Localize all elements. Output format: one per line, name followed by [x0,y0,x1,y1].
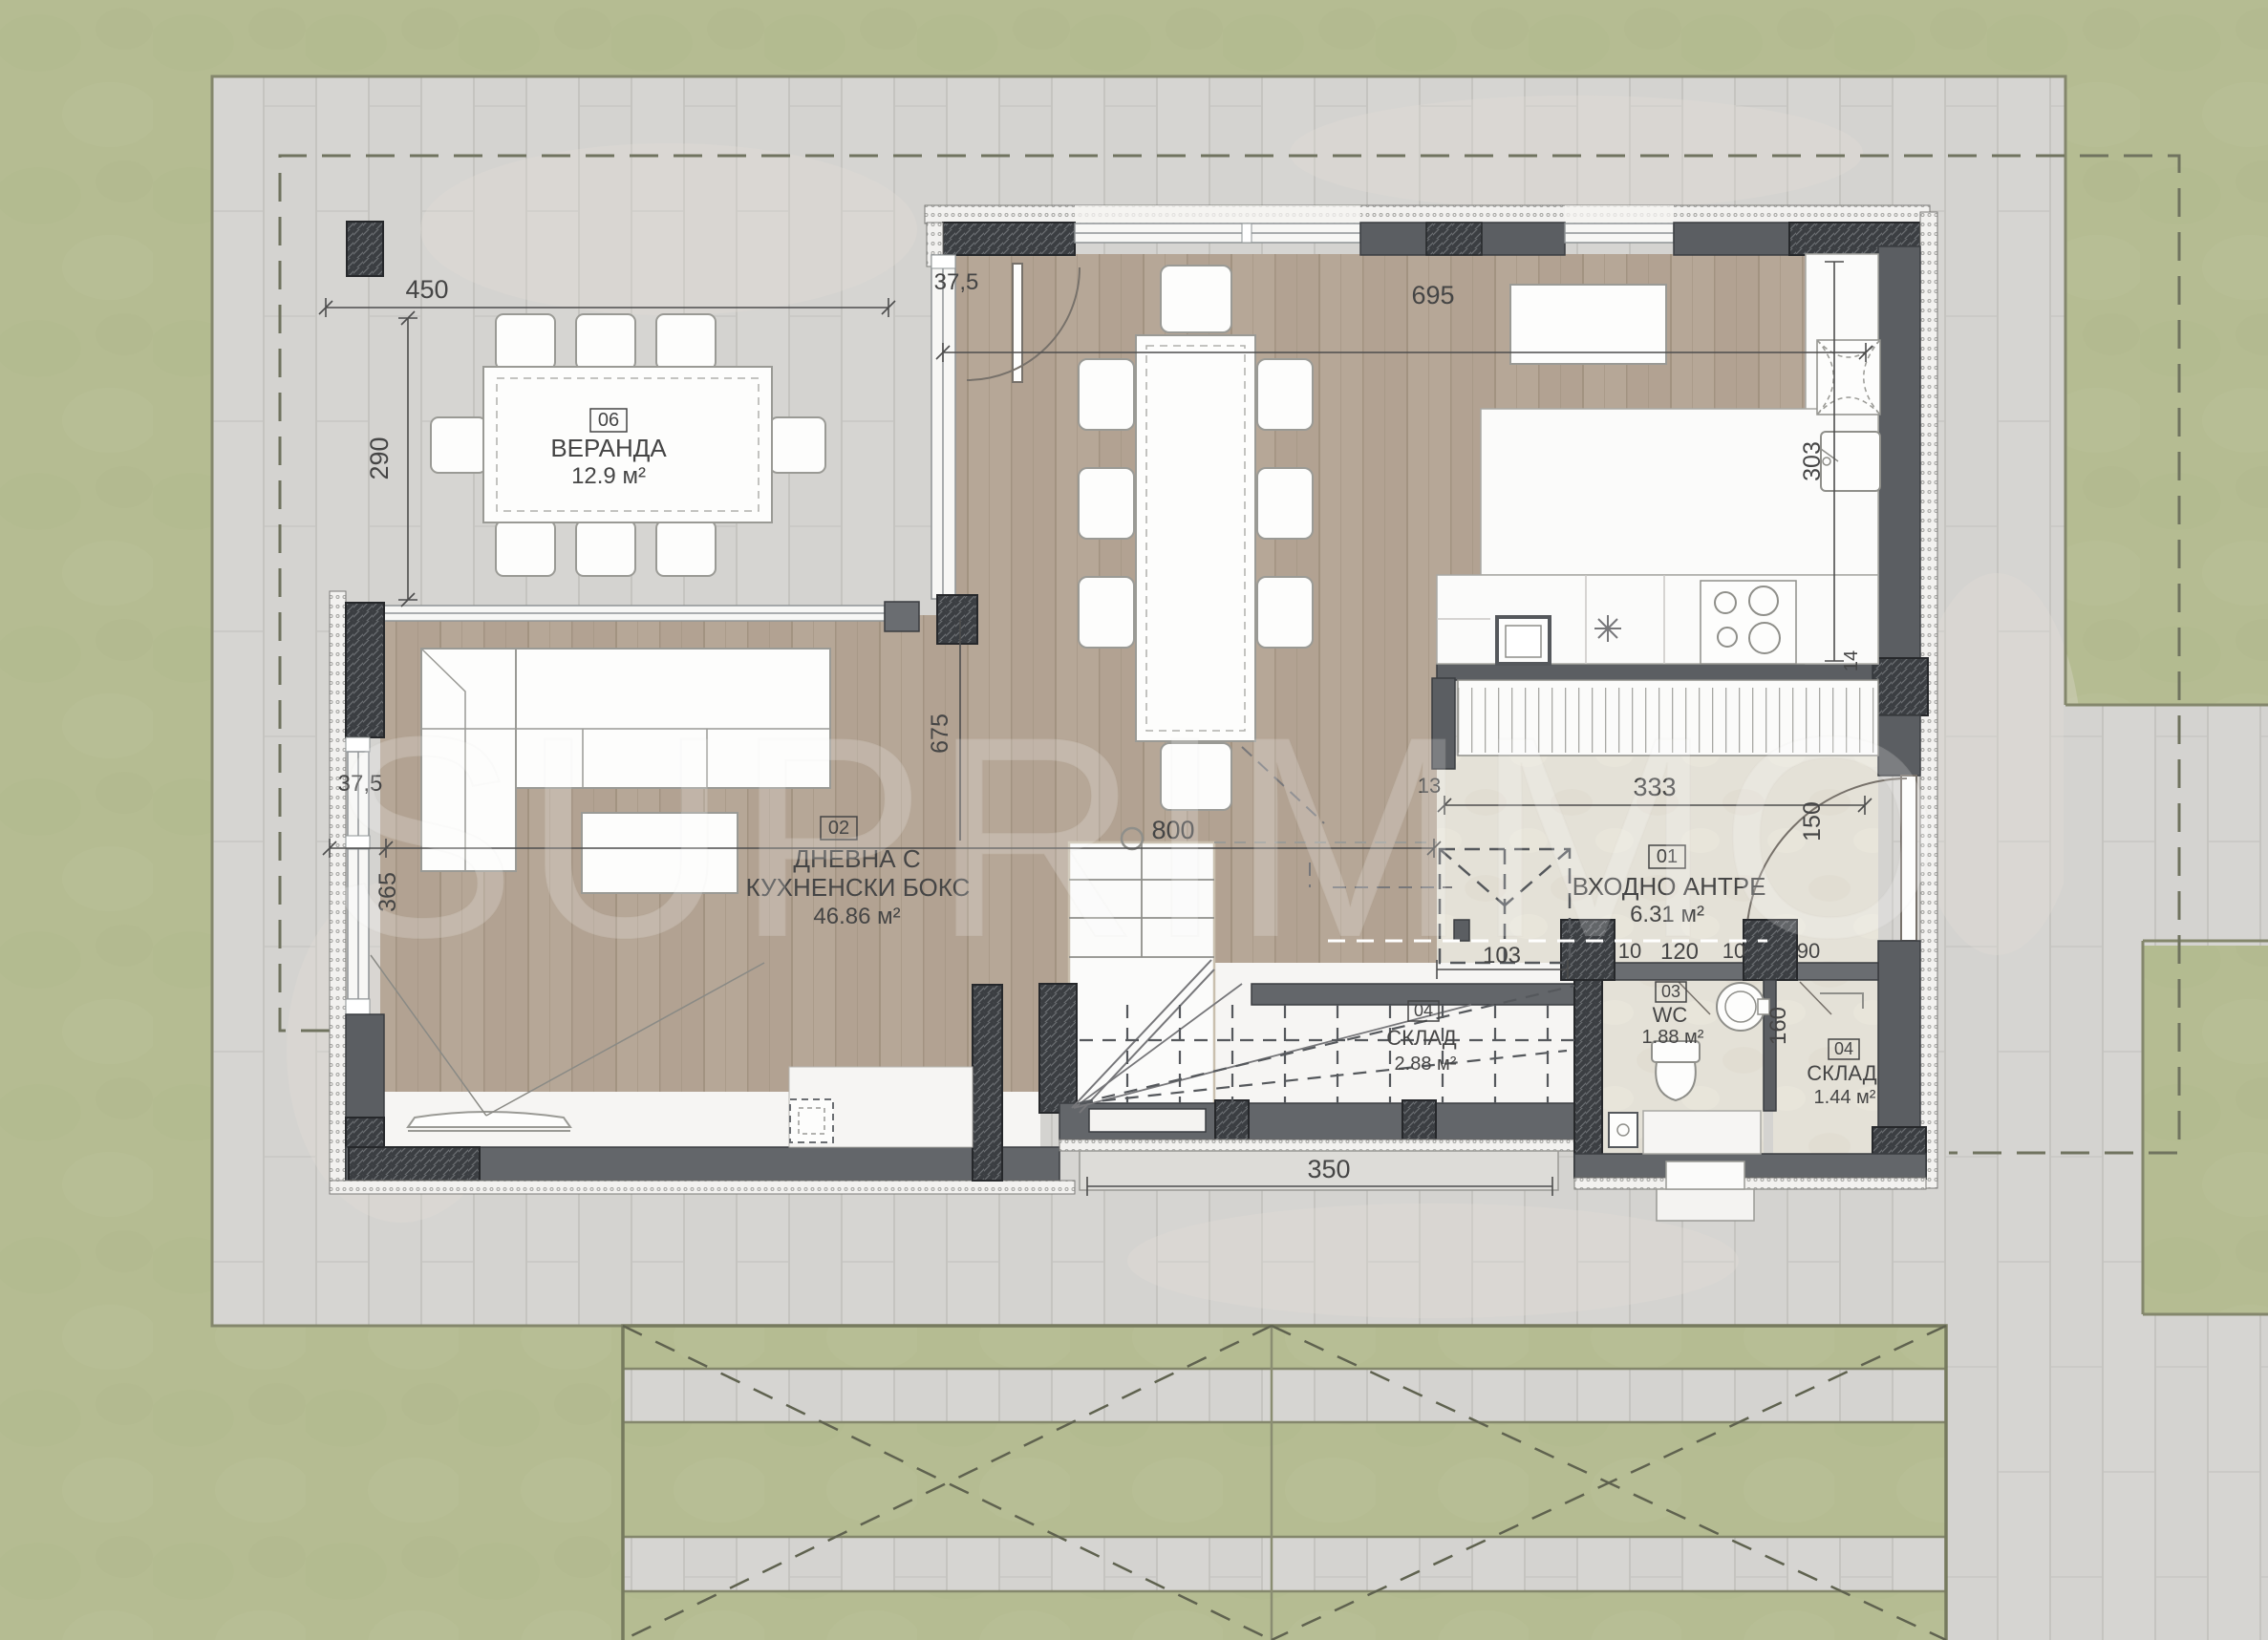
svg-text:SUPRIMMO: SUPRIMMO [326,676,1948,997]
svg-text:350: 350 [1307,1155,1350,1183]
svg-text:160: 160 [1765,1007,1791,1045]
svg-text:450: 450 [405,275,448,304]
svg-text:2.88 м²: 2.88 м² [1395,1054,1457,1075]
svg-text:СКЛАД: СКЛАД [1386,1026,1457,1050]
svg-text:06: 06 [598,410,619,431]
svg-text:СКЛАД: СКЛАД [1807,1061,1877,1085]
svg-text:695: 695 [1411,281,1454,309]
svg-text:04: 04 [1834,1039,1853,1058]
svg-text:14: 14 [1841,650,1862,671]
svg-text:303: 303 [1799,441,1826,481]
svg-text:1.44 м²: 1.44 м² [1814,1087,1876,1108]
svg-text:12.9 м²: 12.9 м² [571,463,646,489]
svg-text:04: 04 [1414,1001,1433,1020]
svg-text:290: 290 [365,437,394,479]
svg-text:WC: WC [1653,1003,1688,1027]
svg-text:ВЕРАНДА: ВЕРАНДА [550,434,667,462]
svg-text:1.88 м²: 1.88 м² [1642,1027,1704,1048]
svg-text:37,5: 37,5 [934,269,979,295]
